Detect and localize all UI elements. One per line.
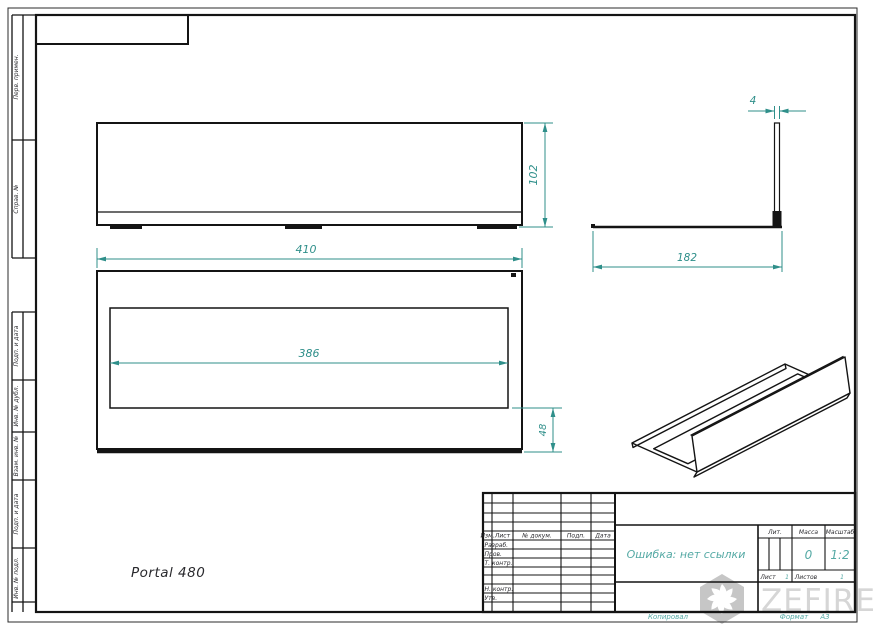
dimensions: 410 102 386 48 [97, 95, 806, 452]
dim-4-text: 4 [750, 95, 757, 107]
dim-4: 4 [748, 95, 806, 119]
row-prov: Пров. [485, 551, 503, 558]
row-tkontr: Т. контр. [485, 560, 513, 567]
copied-label: Копировал [648, 613, 689, 621]
lit-label: Лит. [767, 529, 782, 536]
dim-102-text: 102 [527, 165, 540, 186]
col-podp: Подп. [567, 533, 585, 540]
col-list: Лист [494, 533, 511, 540]
row-razrab: Разраб. [485, 542, 509, 549]
dim-410-text: 410 [296, 243, 317, 256]
strip-label-podp-data-2: Подп. и дата [13, 493, 20, 534]
plan-view [97, 271, 522, 452]
sheet-frame [8, 8, 857, 622]
strip-label-perv-primen: Перв. примен. [13, 54, 20, 99]
sheet-label: Лист [759, 574, 776, 581]
dim-410: 410 [97, 243, 522, 268]
drawing-canvas: ZEFIRE Перв. примен. Справ. № Подп. и да… [0, 0, 880, 628]
strip-label-sprav-no: Справ. № [13, 184, 20, 213]
scale-label: Масштаб [826, 529, 855, 536]
scale-value: 1:2 [830, 548, 849, 562]
row-nkontr: Н. контр. [485, 586, 514, 593]
dim-182: 182 [593, 231, 782, 272]
zefire-logo-pinwheel [707, 584, 737, 614]
strip-label-inv-podl: Инв. № подл. [13, 557, 20, 598]
format-value: A3 [819, 613, 829, 621]
plan-view-marker [511, 273, 516, 277]
col-izm: Изм. [480, 533, 494, 540]
left-margin-labels: Перв. примен. Справ. № Подп. и дата Инв.… [13, 54, 20, 598]
dim-386: 386 [110, 347, 508, 365]
front-view [97, 123, 522, 227]
strip-label-podp-data-1: Подп. и дата [13, 325, 20, 366]
side-view [591, 123, 782, 228]
col-data: Дата [594, 533, 611, 540]
watermark-text: ZEFIRE [761, 583, 876, 619]
part-name: Portal 480 [131, 565, 205, 581]
dim-102: 102 [519, 123, 553, 227]
dim-48-text: 48 [538, 424, 549, 437]
doc-title: Ошибка: нет ссылки [627, 548, 746, 561]
sheet-value: 1 [785, 574, 789, 581]
row-utv: Утв. [485, 595, 498, 602]
frame-footer: Копировал Формат A3 [648, 613, 830, 621]
isometric-view [632, 356, 850, 477]
drawing-sheet: ZEFIRE Перв. примен. Справ. № Подп. и да… [0, 0, 880, 628]
dim-48: 48 [512, 408, 562, 452]
mass-value: 0 [805, 548, 813, 562]
dim-182-text: 182 [677, 252, 697, 264]
strip-label-vzam-inv: Взам. инв. № [13, 436, 20, 477]
format-label: Формат [780, 613, 809, 621]
dim-386-text: 386 [299, 347, 320, 360]
mass-label: Масса [799, 529, 818, 536]
sheets-value: 1 [840, 574, 844, 581]
col-dokum: № докум. [521, 533, 552, 540]
sheets-label: Листов [794, 574, 818, 581]
strip-label-inv-dubl: Инв. № дубл. [13, 385, 20, 426]
